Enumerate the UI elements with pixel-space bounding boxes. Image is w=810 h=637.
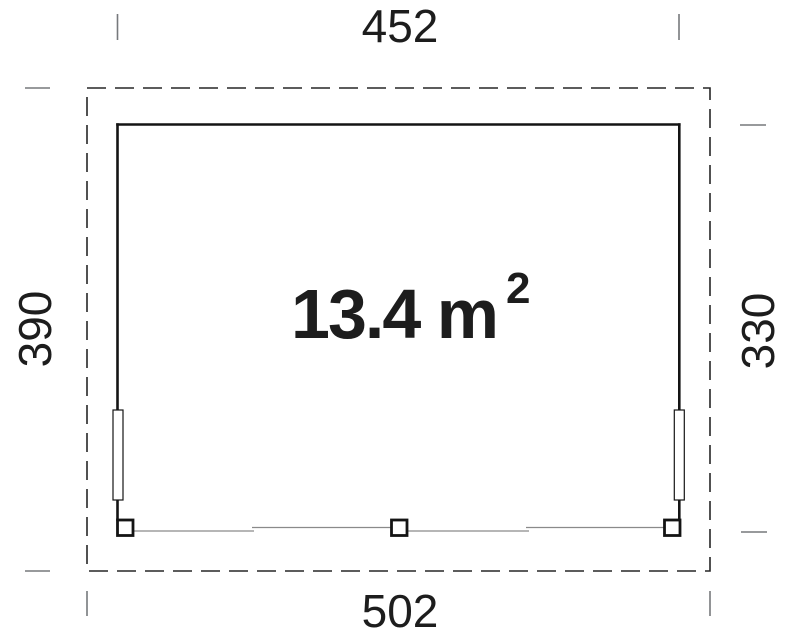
floor-plan-canvas: 452 502 390 330 13.4 m 2 [0, 0, 810, 637]
post-center [392, 520, 408, 536]
dimension-label-left: 390 [9, 291, 61, 368]
left-window [113, 410, 123, 500]
post-left [118, 520, 134, 536]
area-superscript: 2 [506, 264, 530, 313]
dimension-label-top: 452 [362, 0, 439, 52]
dimension-label-right: 330 [732, 293, 784, 370]
area-label-group: 13.4 m 2 [291, 264, 530, 353]
post-right [665, 520, 681, 536]
area-label: 13.4 m [291, 275, 497, 353]
dimension-label-bottom: 502 [362, 585, 439, 637]
window-panels-group [113, 410, 684, 500]
right-window [674, 410, 684, 500]
floor-plan-page: 452 502 390 330 13.4 m 2 [0, 0, 810, 637]
